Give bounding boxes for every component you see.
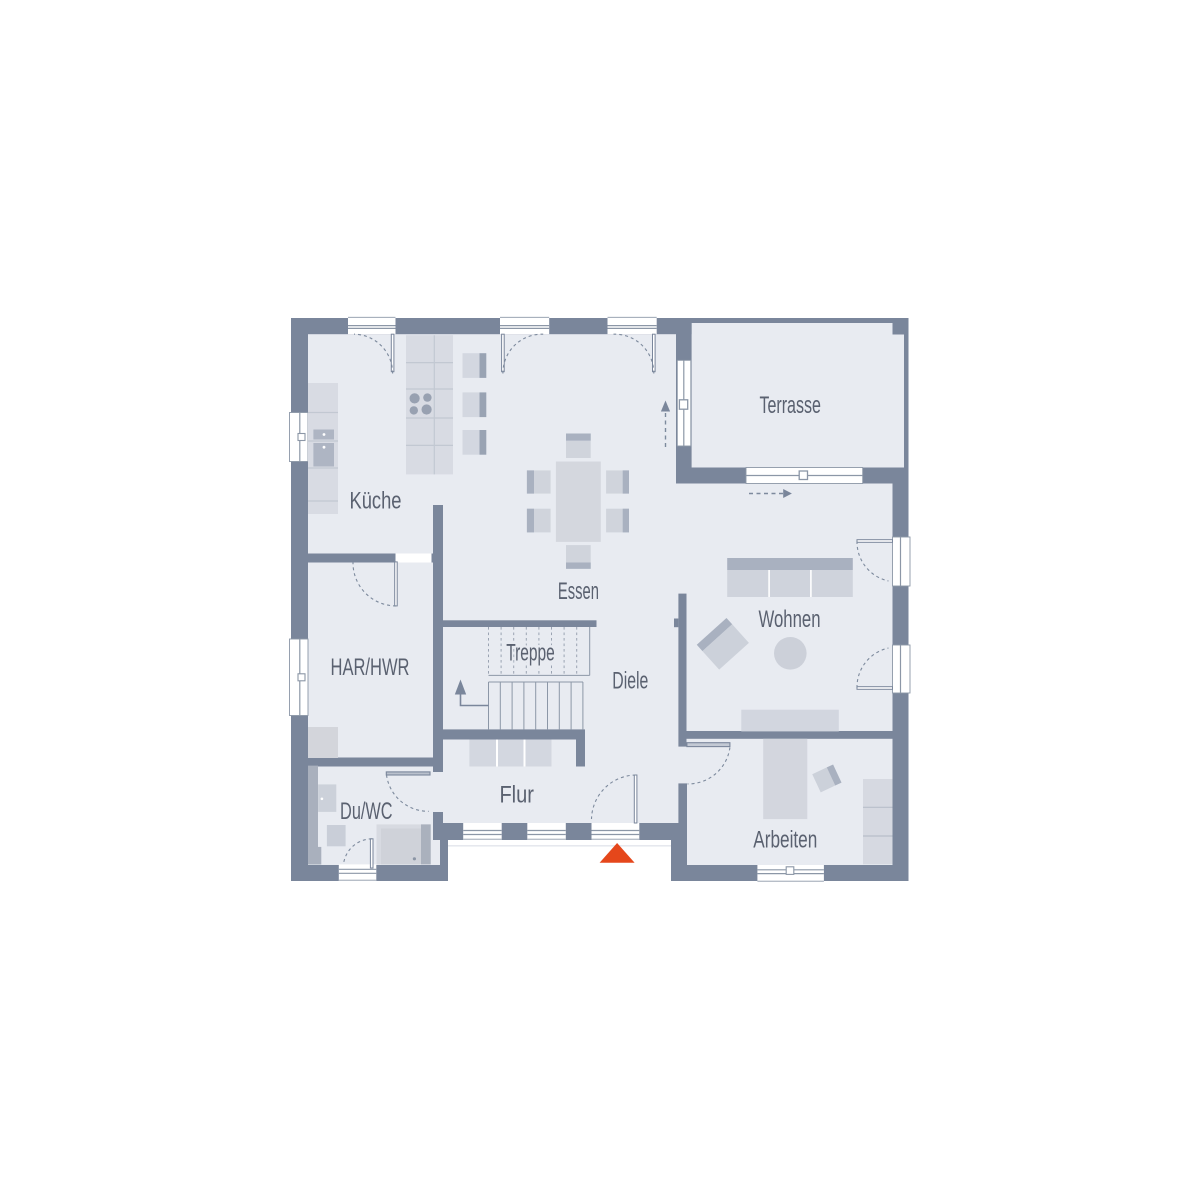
svg-text:HAR/HWR: HAR/HWR [331,654,410,681]
svg-text:Arbeiten: Arbeiten [753,827,817,854]
svg-text:Du/WC: Du/WC [340,798,393,825]
svg-text:Flur: Flur [499,782,534,809]
svg-text:Treppe: Treppe [506,640,555,667]
svg-text:Küche: Küche [350,488,402,515]
svg-text:Wohnen: Wohnen [759,606,821,633]
svg-text:Essen: Essen [558,578,599,605]
svg-text:Terrasse: Terrasse [759,392,821,419]
svg-text:Diele: Diele [612,668,648,695]
